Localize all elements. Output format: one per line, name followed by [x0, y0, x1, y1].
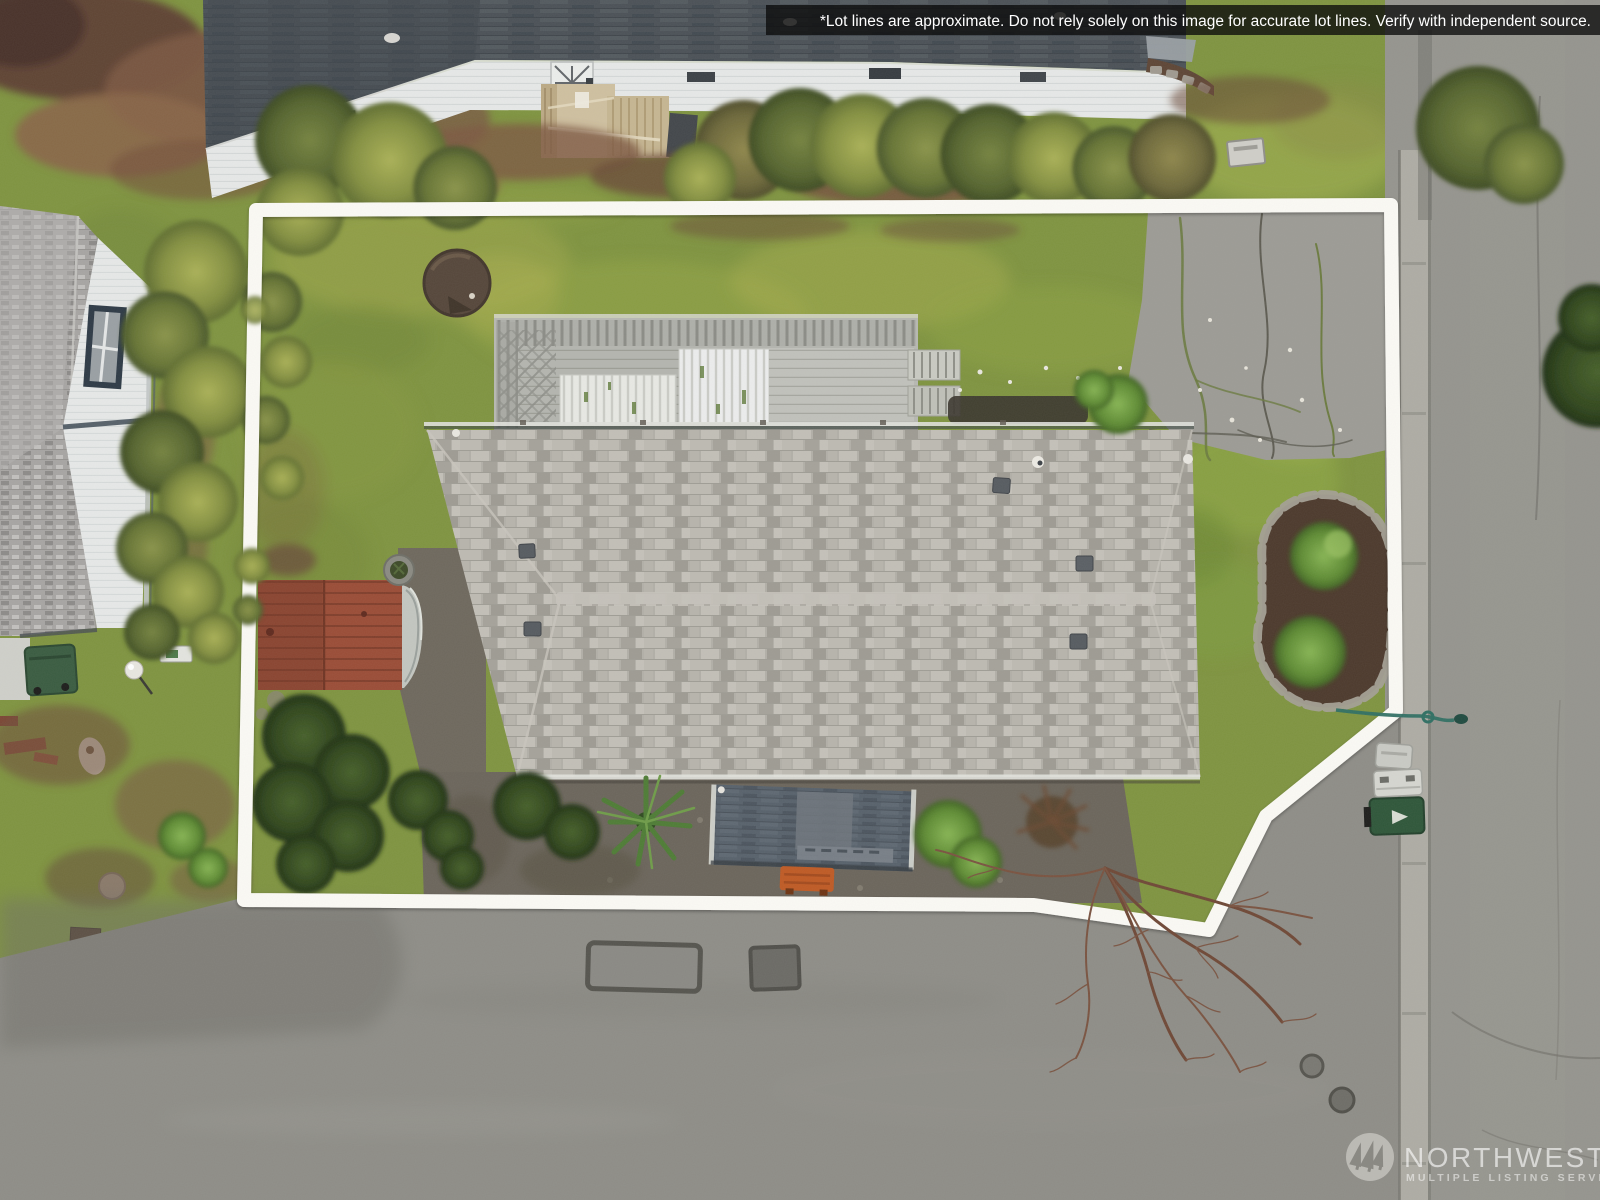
- disclaimer-text: *Lot lines are approximate. Do not rely …: [820, 13, 1591, 30]
- watermark-title: NORTHWEST: [1404, 1142, 1600, 1173]
- nwmls-logo-badge: [1346, 1133, 1394, 1181]
- disclaimer-banner: *Lot lines are approximate. Do not rely …: [766, 5, 1600, 35]
- aerial-photo: *Lot lines are approximate. Do not rely …: [0, 0, 1600, 1200]
- watermark-subtitle: MULTIPLE LISTING SERVICE: [1406, 1172, 1600, 1184]
- aerial-photo-canvas: *Lot lines are approximate. Do not rely …: [0, 0, 1600, 1200]
- photo-grain: [0, 0, 1600, 1200]
